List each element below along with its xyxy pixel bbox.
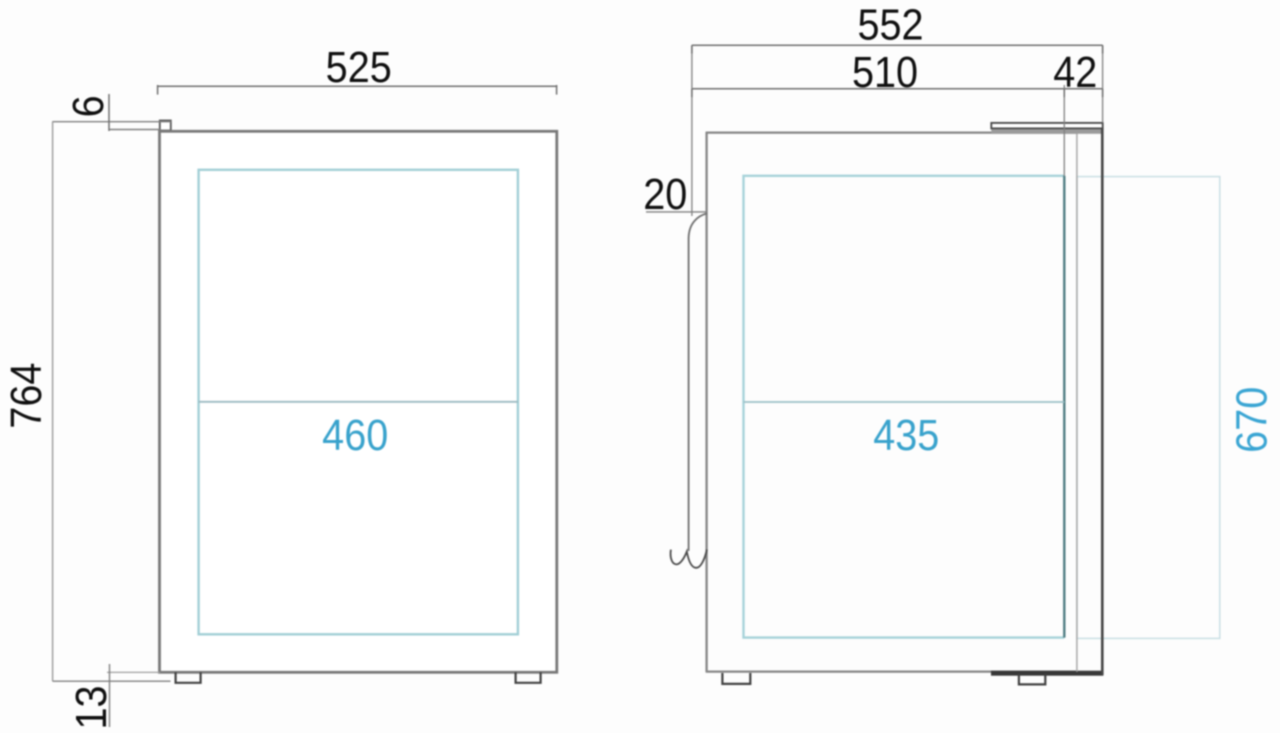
svg-text:42: 42	[1053, 47, 1097, 96]
svg-text:510: 510	[852, 47, 918, 96]
svg-text:20: 20	[643, 169, 687, 218]
svg-text:670: 670	[1227, 387, 1276, 453]
svg-text:13: 13	[66, 685, 115, 729]
svg-text:552: 552	[857, 0, 923, 49]
svg-text:435: 435	[873, 410, 939, 459]
svg-text:764: 764	[1, 363, 50, 429]
svg-text:460: 460	[322, 410, 388, 459]
svg-text:525: 525	[326, 42, 392, 91]
svg-text:6: 6	[63, 95, 112, 117]
